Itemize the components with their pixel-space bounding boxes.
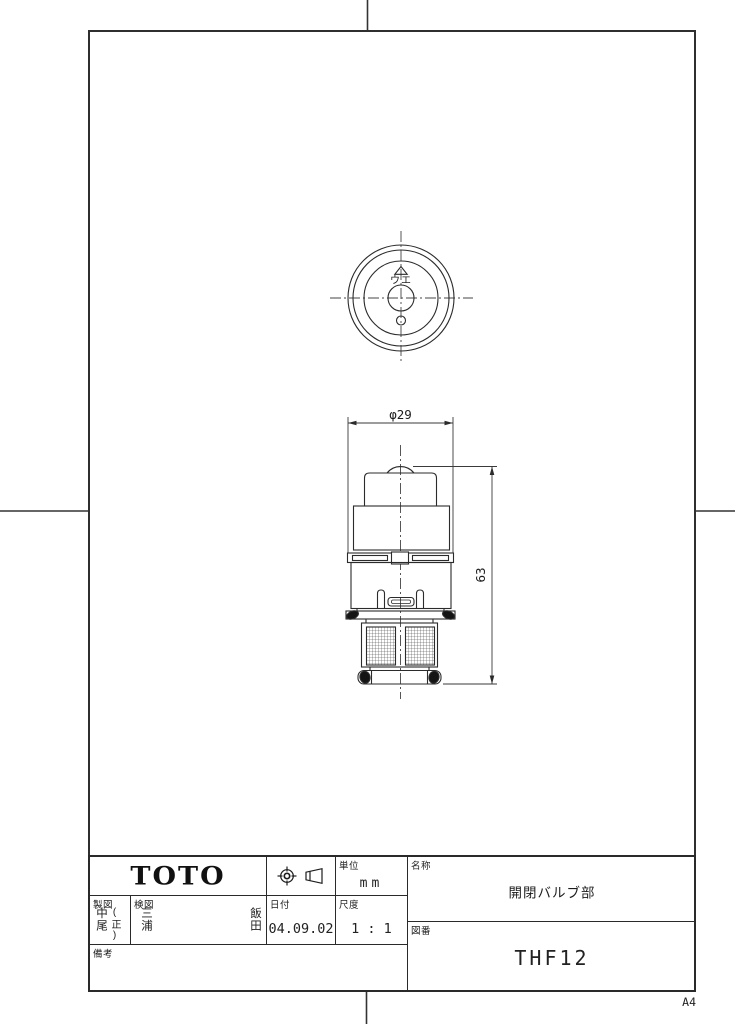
checker-name-2: 飯田 [249, 907, 261, 932]
orientation-label: ウエ [390, 275, 412, 287]
scale-label: 尺度 [339, 897, 359, 911]
scale-cell: 尺度 1 : 1 [336, 896, 408, 945]
main-body [351, 563, 451, 609]
unit-cell: 単位 mm [336, 857, 408, 896]
center-slot-inner [392, 600, 411, 604]
drawing-number-value: THF12 [408, 946, 696, 970]
part-name-label: 名称 [411, 858, 431, 872]
unit-label: 単位 [339, 858, 359, 872]
logo-cell: TOTO [90, 857, 267, 896]
date-cell: 日付 04.09.02 [267, 896, 336, 945]
date-label: 日付 [270, 897, 290, 911]
snap-window-right [413, 556, 449, 561]
filter-mesh-right [406, 627, 435, 665]
remarks-cell: 備考 [90, 945, 408, 992]
drawing-number-label: 図番 [411, 923, 431, 937]
title-block: TOTO 単位 mm 製図 [88, 855, 696, 992]
scale-value: 1 : 1 [336, 921, 407, 937]
pin-right [417, 590, 424, 609]
dim-height-text: 63 [473, 567, 488, 582]
toto-logo: TOTO [130, 861, 225, 890]
top-view-centerlines [330, 231, 473, 364]
projection-symbol-icon [273, 862, 329, 890]
drawing-sheet: ウエ [0, 0, 735, 1024]
date-value: 04.09.02 [267, 921, 335, 937]
oring-bottom-left [359, 670, 372, 684]
oring-bottom-right [428, 670, 441, 684]
checker-name-1: 三浦 [140, 907, 152, 932]
dim-diameter-text: φ29 [389, 407, 412, 422]
filter-mesh-left [367, 627, 396, 665]
drafter-cell: 製図 中尾 (正) [90, 896, 131, 945]
snap-window-left [353, 556, 388, 561]
drawing-frame [89, 31, 695, 991]
front-view [345, 445, 455, 699]
part-name-cell: 名称 開閉バルブ部 [408, 857, 696, 922]
upper-housing [354, 506, 450, 550]
checker-cell: 検図 三浦 飯田 [131, 896, 267, 945]
remarks-label: 備考 [93, 946, 113, 960]
unit-value: mm [336, 876, 407, 891]
paper-size-label: A4 [664, 995, 696, 1009]
drafter-annotation: (正) [108, 907, 120, 942]
part-name-value: 開閉バルブ部 [408, 881, 696, 901]
projection-symbol-cell [267, 857, 336, 896]
drafter-name: 中尾 [95, 907, 107, 942]
drawing-number-cell: 図番 THF12 [408, 922, 696, 992]
top-view: ウエ [330, 231, 473, 364]
pin-left [378, 590, 385, 609]
